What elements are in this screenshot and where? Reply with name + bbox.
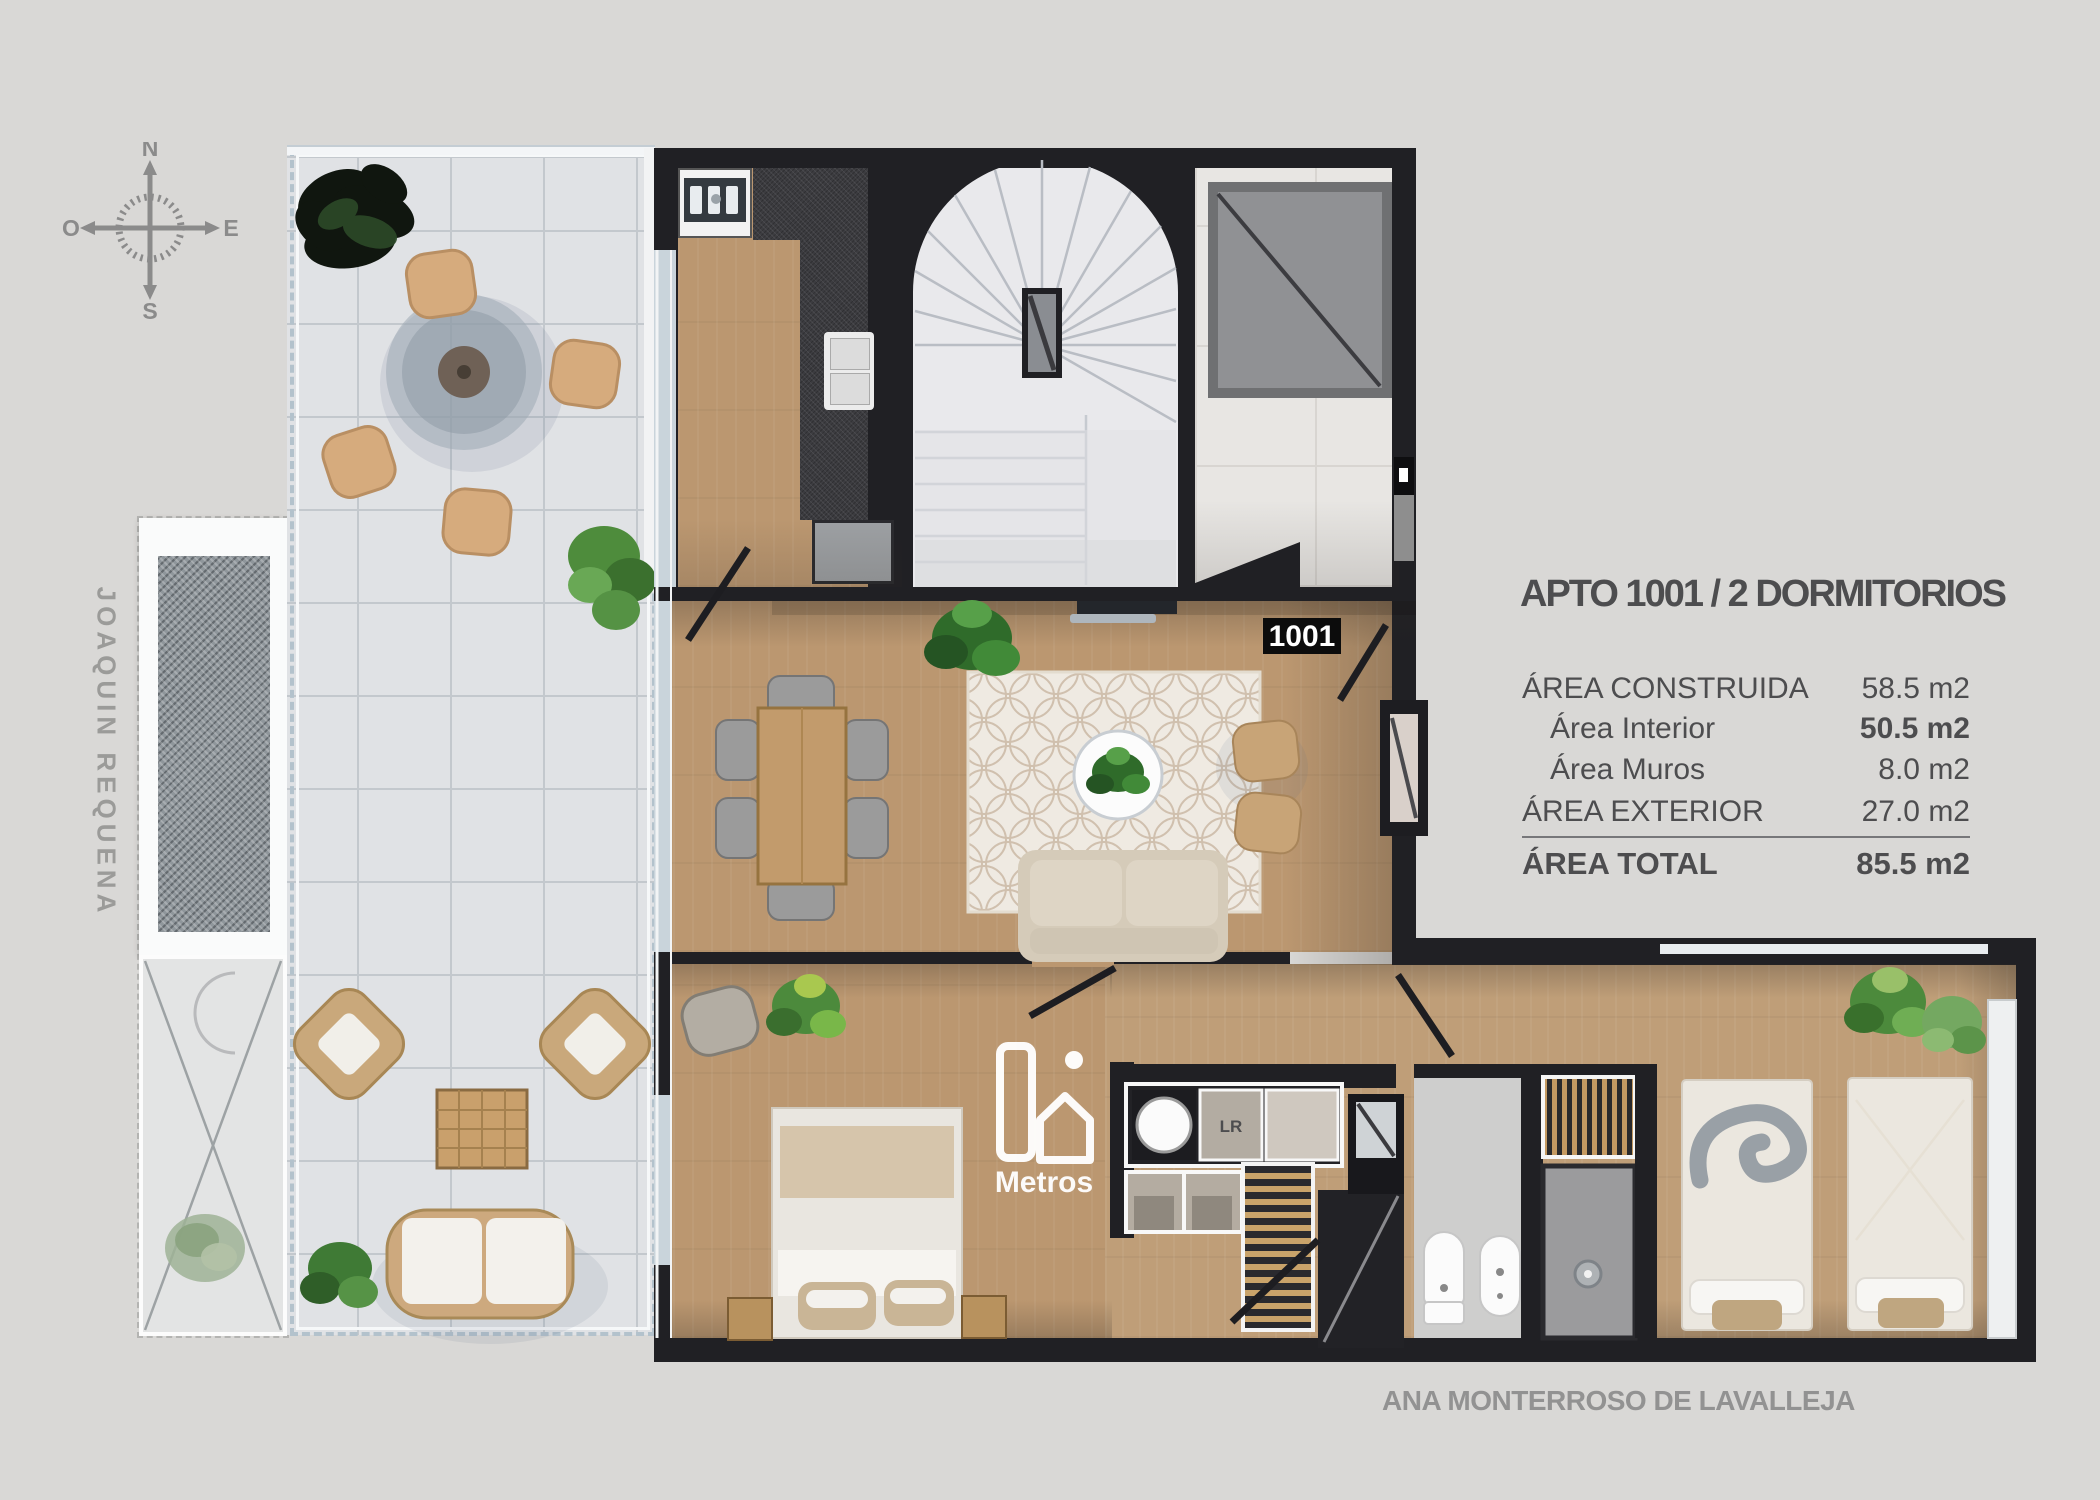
svg-text:Metros: Metros — [995, 1166, 1093, 1199]
svg-text:LR: LR — [1220, 1117, 1243, 1136]
